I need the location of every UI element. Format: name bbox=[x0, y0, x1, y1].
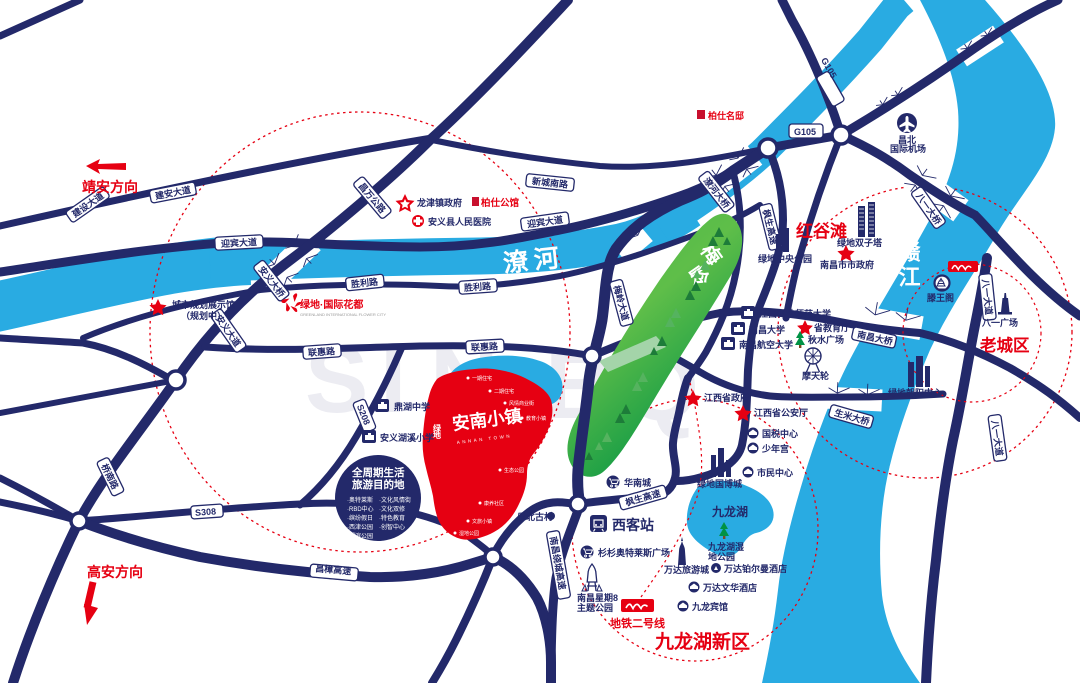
svg-text:教育小镇: 教育小镇 bbox=[526, 415, 546, 422]
svg-text:八一广场: 八一广场 bbox=[981, 317, 1018, 328]
svg-text:文旅小镇: 文旅小镇 bbox=[472, 518, 492, 525]
svg-text:绿地国博城: 绿地国博城 bbox=[697, 478, 742, 489]
svg-text:龙津镇政府: 龙津镇政府 bbox=[416, 197, 462, 208]
svg-text:国税中心: 国税中心 bbox=[762, 428, 798, 439]
svg-text:九龙湖湿: 九龙湖湿 bbox=[707, 541, 744, 552]
svg-text:南昌航空大学: 南昌航空大学 bbox=[739, 339, 793, 350]
svg-text:G105: G105 bbox=[794, 127, 816, 137]
svg-text:柏仕名邸: 柏仕名邸 bbox=[708, 110, 744, 121]
svg-text:安义县人民医院: 安义县人民医院 bbox=[428, 216, 491, 227]
svg-text:·湖滨公园: ·湖滨公园 bbox=[347, 532, 373, 540]
svg-text:风情商业街: 风情商业街 bbox=[509, 400, 534, 407]
svg-text:鼎湖中学: 鼎湖中学 bbox=[394, 401, 430, 412]
svg-text:地公园: 地公园 bbox=[708, 551, 735, 562]
svg-text:江西科技师范大学: 江西科技师范大学 bbox=[759, 308, 831, 319]
svg-text:·创智中心: ·创智中心 bbox=[379, 523, 405, 531]
svg-text:西客站: 西客站 bbox=[612, 517, 654, 533]
svg-text:高安方向: 高安方向 bbox=[87, 564, 143, 580]
svg-text:绿地双子塔: 绿地双子塔 bbox=[837, 237, 883, 248]
svg-text:地铁二号线: 地铁二号线 bbox=[610, 616, 665, 630]
svg-text:联惠路: 联惠路 bbox=[308, 345, 337, 358]
svg-text:南昌星期8: 南昌星期8 bbox=[577, 592, 618, 603]
svg-text:（规划中）: （规划中） bbox=[181, 310, 226, 321]
svg-text:秋水广场: 秋水广场 bbox=[807, 334, 844, 345]
svg-text:一期住宅: 一期住宅 bbox=[472, 375, 492, 382]
svg-text:·缤纷假日: ·缤纷假日 bbox=[347, 514, 373, 522]
svg-text:九龙宾馆: 九龙宾馆 bbox=[691, 601, 728, 612]
svg-text:赣江: 赣江 bbox=[896, 239, 921, 290]
svg-text:市民中心: 市民中心 bbox=[757, 467, 793, 478]
svg-text:·RBD中心: ·RBD中心 bbox=[347, 505, 374, 513]
svg-text:·文化双修: ·文化双修 bbox=[379, 505, 405, 513]
svg-text:南昌市市政府: 南昌市市政府 bbox=[820, 259, 874, 270]
svg-text:杉杉奥特莱斯广场: 杉杉奥特莱斯广场 bbox=[598, 547, 670, 558]
svg-text:二期住宅: 二期住宅 bbox=[494, 388, 514, 395]
svg-text:主题公园: 主题公园 bbox=[577, 602, 613, 613]
svg-text:江西省公安厅: 江西省公安厅 bbox=[754, 407, 808, 418]
svg-text:全周期生活: 全周期生活 bbox=[351, 466, 405, 479]
svg-text:康养社区: 康养社区 bbox=[484, 500, 504, 507]
svg-text:万达铂尔曼酒店: 万达铂尔曼酒店 bbox=[723, 563, 787, 574]
svg-text:·文化风情街: ·文化风情街 bbox=[379, 496, 411, 504]
svg-text:靖安方向: 靖安方向 bbox=[82, 179, 138, 195]
svg-text:安义湖溪小学: 安义湖溪小学 bbox=[380, 432, 434, 443]
svg-text:九龙湖新区: 九龙湖新区 bbox=[654, 630, 750, 653]
svg-text:九龙湖: 九龙湖 bbox=[711, 504, 748, 519]
svg-text:城市规划展示馆: 城市规划展示馆 bbox=[172, 299, 235, 310]
svg-text:少年宫: 少年宫 bbox=[761, 443, 789, 454]
svg-text:绿地中央公园: 绿地中央公园 bbox=[758, 253, 812, 264]
svg-text:摩天轮: 摩天轮 bbox=[802, 370, 829, 381]
svg-text:省教育厅: 省教育厅 bbox=[813, 322, 850, 333]
svg-text:湿地公园: 湿地公园 bbox=[459, 530, 479, 537]
svg-text:·特色教育: ·特色教育 bbox=[379, 514, 405, 522]
svg-text:绿地·国际花都: 绿地·国际花都 bbox=[300, 298, 363, 311]
svg-text:南昌大学: 南昌大学 bbox=[749, 324, 785, 335]
svg-text:胜利路: 胜利路 bbox=[463, 280, 493, 293]
svg-text:迎宾大道: 迎宾大道 bbox=[221, 236, 258, 249]
svg-text:绿地朝阳中心: 绿地朝阳中心 bbox=[888, 387, 942, 398]
svg-text:·奥特莱斯: ·奥特莱斯 bbox=[347, 496, 373, 504]
svg-text:万达文华酒店: 万达文华酒店 bbox=[702, 582, 757, 593]
svg-text:江西省政府: 江西省政府 bbox=[704, 392, 749, 403]
svg-text:国际机场: 国际机场 bbox=[890, 143, 926, 154]
svg-text:GREENLAND INTERNATIONAL FLOWER: GREENLAND INTERNATIONAL FLOWER CITY bbox=[300, 312, 386, 317]
svg-text:S308: S308 bbox=[195, 506, 217, 517]
svg-text:生态公园: 生态公园 bbox=[504, 467, 524, 474]
svg-text:柏仕公馆: 柏仕公馆 bbox=[481, 197, 520, 209]
svg-text:旅游目的地: 旅游目的地 bbox=[352, 478, 405, 491]
svg-text:老城区: 老城区 bbox=[979, 335, 1030, 355]
svg-text:滕王阁: 滕王阁 bbox=[927, 292, 954, 303]
svg-text:联惠路: 联惠路 bbox=[471, 340, 500, 352]
svg-text:·西津公园: ·西津公园 bbox=[347, 524, 373, 531]
svg-text:华南城: 华南城 bbox=[624, 477, 651, 488]
svg-text:万达旅游城: 万达旅游城 bbox=[663, 564, 709, 575]
